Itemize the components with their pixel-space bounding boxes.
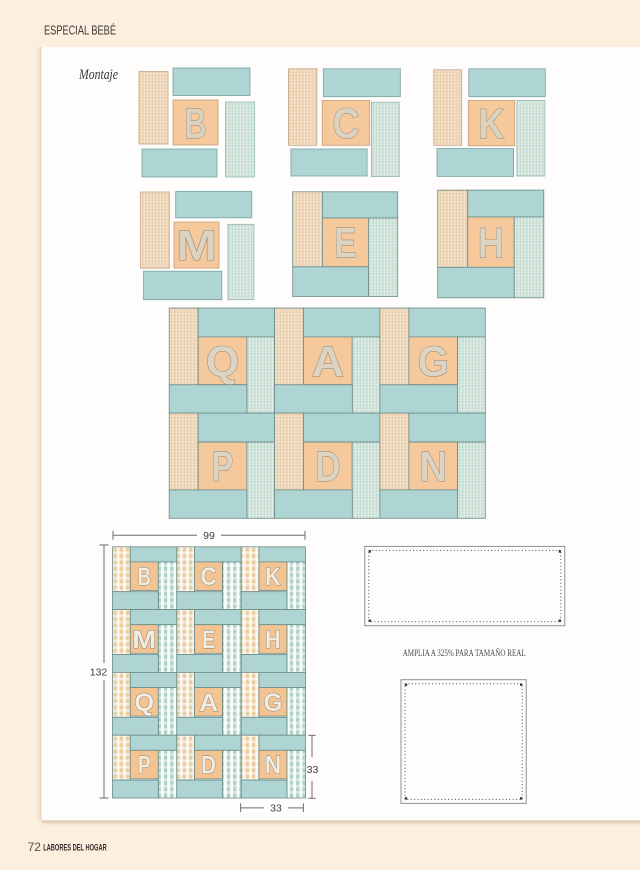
svg-text:D: D bbox=[201, 751, 216, 779]
svg-text:Montaje: Montaje bbox=[78, 67, 118, 83]
svg-text:G: G bbox=[264, 689, 283, 717]
svg-text:P: P bbox=[138, 751, 151, 779]
svg-text:99: 99 bbox=[203, 530, 215, 542]
svg-text:C: C bbox=[201, 564, 217, 592]
svg-text:LABORES DEL HOGAR: LABORES DEL HOGAR bbox=[43, 843, 107, 853]
svg-text:D: D bbox=[315, 444, 340, 491]
svg-text:A: A bbox=[312, 338, 344, 386]
svg-text:K: K bbox=[478, 101, 505, 148]
svg-text:E: E bbox=[334, 220, 356, 268]
svg-text:H: H bbox=[265, 625, 280, 653]
svg-text:Q: Q bbox=[206, 338, 239, 386]
svg-text:K: K bbox=[265, 563, 281, 591]
svg-text:72: 72 bbox=[28, 840, 42, 854]
svg-text:B: B bbox=[138, 562, 151, 591]
svg-text:AMPLIA A 325% PARA TAMAÑO REAL: AMPLIA A 325% PARA TAMAÑO REAL bbox=[403, 648, 526, 658]
svg-text:C: C bbox=[332, 100, 359, 148]
svg-text:E: E bbox=[202, 626, 215, 654]
svg-text:132: 132 bbox=[90, 666, 108, 678]
svg-text:H: H bbox=[478, 220, 504, 267]
svg-text:A: A bbox=[199, 689, 218, 716]
svg-text:N: N bbox=[419, 442, 447, 490]
svg-text:M: M bbox=[132, 626, 156, 654]
svg-text:B: B bbox=[184, 99, 206, 147]
svg-text:M: M bbox=[176, 221, 217, 269]
svg-text:P: P bbox=[212, 443, 233, 491]
svg-text:G: G bbox=[418, 337, 449, 385]
svg-text:33: 33 bbox=[307, 764, 319, 776]
svg-text:Q: Q bbox=[135, 689, 155, 717]
svg-text:N: N bbox=[265, 752, 281, 780]
svg-text:ESPECIAL BEBÉ: ESPECIAL BEBÉ bbox=[44, 23, 116, 38]
svg-text:33: 33 bbox=[270, 802, 282, 814]
